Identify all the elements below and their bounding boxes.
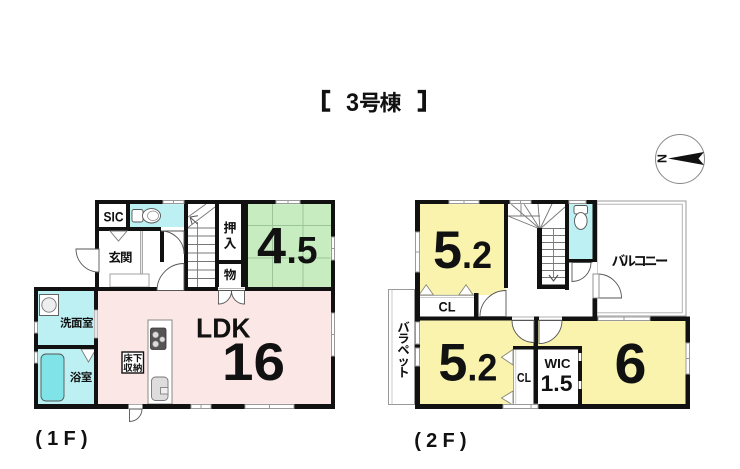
svg-text:16: 16 [222,333,285,392]
svg-text:(1F): (1F) [35,428,92,450]
svg-text:4: 4 [257,217,287,274]
svg-text:.2: .2 [462,235,492,277]
svg-text:1.5: 1.5 [541,371,573,396]
svg-text:WIC: WIC [545,357,571,371]
svg-text:6: 6 [615,332,647,396]
svg-text:CL: CL [517,370,531,385]
svg-text:.2: .2 [467,348,497,390]
svg-text:.5: .5 [287,230,318,272]
svg-text:5: 5 [433,221,462,280]
svg-text:SIC: SIC [104,210,124,225]
svg-text:5: 5 [438,334,467,393]
svg-text:(2F): (2F) [414,430,471,452]
svg-text:N: N [655,154,669,163]
svg-text:CL: CL [439,300,456,315]
svg-text:3: 3 [346,89,359,117]
